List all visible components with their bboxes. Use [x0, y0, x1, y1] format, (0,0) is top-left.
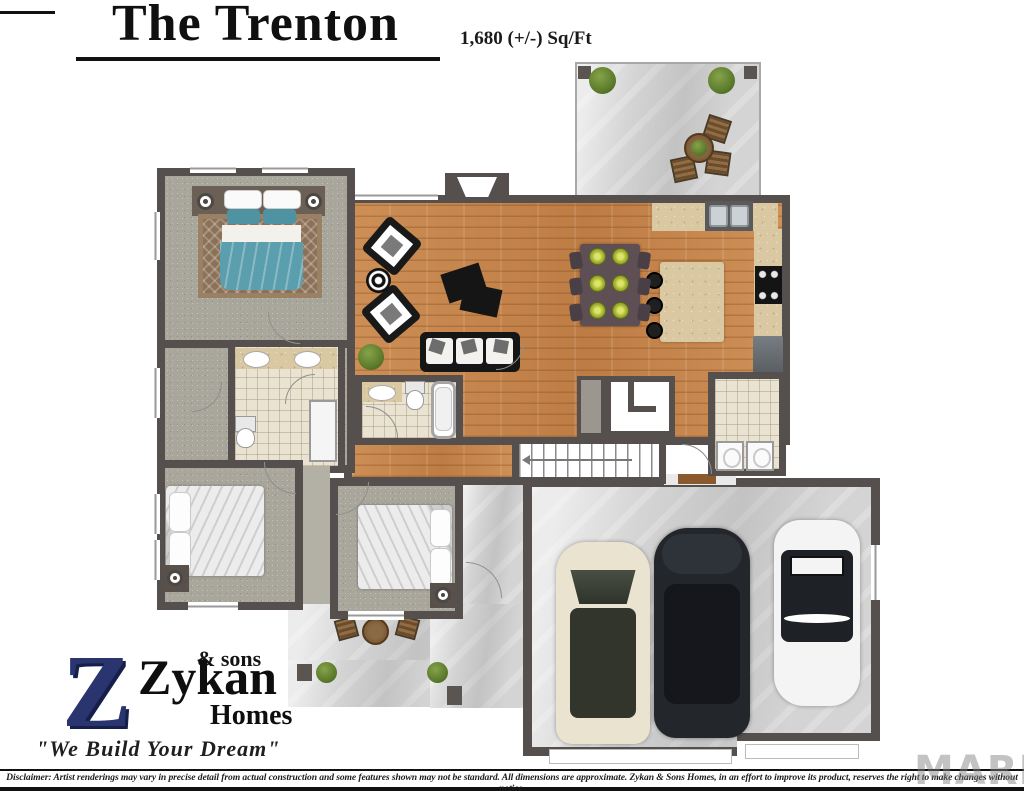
window: [151, 540, 160, 580]
patio-slider-window: [352, 191, 438, 200]
dining-chair: [569, 251, 583, 270]
logo-z-monogram: Z: [62, 640, 131, 744]
dining-chair: [637, 277, 651, 296]
porch-post: [447, 686, 462, 705]
window: [871, 545, 880, 600]
stairs-arrow: [528, 459, 632, 461]
van-roof: [570, 608, 636, 718]
dining-chair: [637, 303, 651, 322]
car-white-strip: [784, 614, 850, 623]
sedan-glass: [664, 584, 740, 704]
porch-table: [362, 618, 389, 645]
bar-stool: [646, 322, 663, 339]
sedan-hood: [662, 534, 742, 574]
stove: [755, 266, 782, 304]
stairs-arrow-head: [522, 455, 530, 465]
page-title: The Trenton: [112, 0, 399, 53]
nightstand-lamp: [167, 570, 183, 586]
window: [348, 611, 404, 620]
nightstand-lamp: [435, 587, 451, 603]
refrigerator: [753, 336, 783, 376]
nightstand-lamp: [197, 193, 214, 210]
bed3-pillow: [430, 548, 451, 586]
garage-door-opening: [549, 749, 732, 764]
kitchen-island: [660, 262, 724, 342]
dining-chair: [637, 251, 651, 270]
logo-homes: Homes: [210, 702, 292, 730]
houseplant: [358, 344, 384, 370]
bedroom-hall: [303, 466, 330, 604]
bed3-pillow: [430, 509, 451, 547]
washer: [716, 441, 744, 471]
hallbath-sink: [368, 385, 396, 401]
logo-zykan: Zykan: [138, 652, 277, 702]
toilet-bowl: [406, 390, 424, 410]
window: [188, 602, 238, 611]
place-setting: [612, 248, 629, 265]
master-bed-pillow-teal: [227, 209, 260, 224]
window: [151, 368, 160, 418]
sink-basin: [709, 205, 728, 227]
place-setting: [589, 248, 606, 265]
dryer: [746, 441, 774, 471]
nightstand-lamp: [305, 193, 322, 210]
title-underline: [76, 57, 440, 61]
shower: [309, 400, 337, 462]
patio-table-plant: [691, 140, 707, 156]
vanity-sink: [294, 351, 321, 368]
closet-divider: [628, 406, 656, 412]
flyer-canvas: The Trenton 1,680 (+/-) Sq/Ft: [0, 0, 1024, 791]
logo-tagline: "We Build Your Dream": [36, 736, 280, 762]
place-setting: [612, 302, 629, 319]
place-setting: [589, 275, 606, 292]
dining-chair: [569, 303, 583, 322]
sink-basin: [730, 205, 749, 227]
bathtub-inner: [435, 387, 452, 431]
window: [151, 212, 160, 260]
toilet-bowl: [236, 428, 255, 448]
square-footage-label: 1,680 (+/-) Sq/Ft: [460, 28, 592, 50]
patio-post: [744, 66, 757, 79]
master-bed-pillow: [224, 190, 262, 209]
bed2-pillow: [169, 492, 191, 532]
top-left-rule: [0, 11, 55, 14]
window: [262, 164, 308, 173]
master-bed-pillow-teal: [263, 209, 296, 224]
bush: [589, 67, 616, 94]
bush: [708, 67, 735, 94]
window: [190, 164, 236, 173]
bush: [316, 662, 337, 683]
garage-door-opening: [745, 744, 859, 759]
car-white-sunroof: [790, 556, 844, 576]
disclaimer-text: Disclaimer: Artist renderings may vary i…: [0, 772, 1024, 791]
window: [151, 494, 160, 534]
master-bed-blanket: [220, 242, 303, 290]
master-bed-pillow: [263, 190, 301, 209]
bush: [427, 662, 448, 683]
side-table: [366, 268, 391, 293]
vanity-sink: [243, 351, 270, 368]
place-setting: [589, 302, 606, 319]
place-setting: [612, 275, 629, 292]
maris-watermark: MARIS: [914, 748, 1024, 791]
stair-landing: [577, 376, 605, 437]
porch-post: [297, 664, 312, 681]
dining-chair: [569, 277, 583, 296]
